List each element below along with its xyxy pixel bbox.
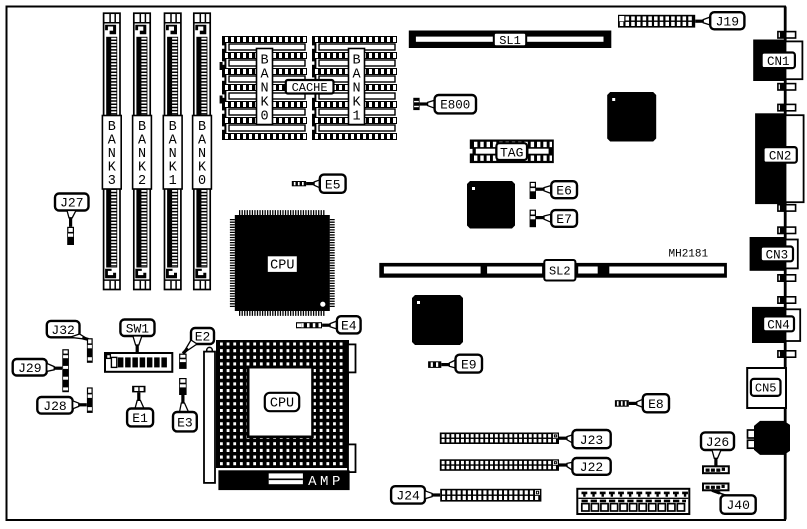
svg-text:CACHE: CACHE [292, 81, 328, 95]
svg-text:E9: E9 [461, 357, 477, 372]
svg-text:E5: E5 [325, 177, 341, 192]
svg-text:K: K [352, 95, 361, 110]
svg-text:B: B [260, 53, 268, 68]
svg-text:0: 0 [198, 174, 206, 189]
svg-text:E2: E2 [195, 330, 211, 345]
svg-text:3: 3 [108, 174, 116, 189]
svg-text:J29: J29 [18, 361, 41, 376]
svg-text:N: N [260, 81, 268, 96]
svg-text:TAG: TAG [500, 145, 523, 160]
svg-text:J22: J22 [580, 460, 603, 475]
svg-text:E8: E8 [648, 397, 664, 412]
svg-text:CPU: CPU [270, 396, 294, 411]
svg-text:E4: E4 [341, 319, 357, 334]
svg-text:E3: E3 [177, 415, 193, 430]
svg-text:2: 2 [138, 174, 146, 189]
svg-text:J19: J19 [716, 14, 739, 29]
svg-text:E800: E800 [440, 99, 470, 113]
svg-text:AMP: AMP [308, 474, 344, 490]
svg-text:1: 1 [352, 109, 360, 124]
svg-text:CPU: CPU [270, 259, 294, 274]
svg-text:A: A [352, 67, 361, 82]
svg-text:SW1: SW1 [126, 321, 150, 336]
svg-text:J23: J23 [580, 433, 603, 448]
svg-text:J40: J40 [726, 498, 749, 513]
svg-text:CN1: CN1 [767, 55, 790, 69]
svg-text:SL1: SL1 [499, 34, 521, 48]
svg-text:CN3: CN3 [766, 248, 789, 262]
svg-text:K: K [260, 95, 269, 110]
svg-text:E7: E7 [556, 212, 572, 227]
svg-text:CN5: CN5 [755, 382, 777, 396]
svg-text:N: N [352, 81, 360, 96]
svg-text:A: A [260, 67, 269, 82]
svg-text:E6: E6 [556, 183, 572, 198]
svg-text:CN4: CN4 [767, 318, 790, 332]
svg-text:CN2: CN2 [769, 149, 792, 163]
svg-text:J32: J32 [51, 323, 74, 338]
svg-text:B: B [352, 53, 360, 68]
svg-text:0: 0 [260, 109, 268, 124]
svg-text:J28: J28 [43, 399, 66, 414]
svg-text:J27: J27 [60, 196, 83, 211]
svg-text:1: 1 [169, 174, 177, 189]
svg-text:J26: J26 [706, 435, 729, 450]
svg-text:E1: E1 [132, 411, 148, 426]
svg-text:SL2: SL2 [549, 265, 571, 279]
svg-text:J24: J24 [396, 489, 420, 504]
svg-text:MH2181: MH2181 [669, 248, 709, 260]
